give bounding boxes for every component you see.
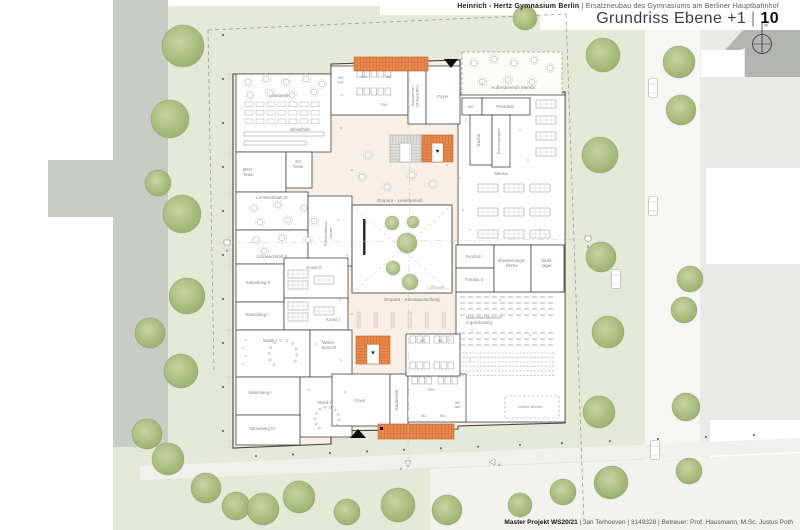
loose-chair-dot (351, 313, 353, 315)
loose-chair-dot (245, 355, 247, 357)
round-table (505, 77, 511, 83)
round-table (283, 79, 289, 85)
loose-chair-dot (469, 359, 471, 361)
bollard-dot (222, 34, 224, 36)
room-label-musik-ii: Musik II (317, 400, 332, 405)
round-table (531, 57, 537, 63)
tree (334, 499, 360, 525)
courtyard-tree (397, 233, 417, 253)
room-label-mensa: Mensa (494, 171, 508, 176)
room-label-essensausgabe: Essensausgabe (497, 128, 501, 154)
ne-lot-c (701, 50, 744, 77)
tree (163, 195, 201, 233)
loose-chair-dot (245, 339, 247, 341)
wc-stall (357, 88, 363, 95)
room-label-küche: Küche (476, 133, 481, 146)
wc-stall (371, 88, 377, 95)
wc-stall (445, 377, 451, 384)
tree (663, 46, 695, 78)
round-table (311, 89, 317, 95)
bollard-dot (222, 122, 224, 124)
courtyard-tree (407, 216, 419, 228)
exhibition-pillar (442, 312, 446, 328)
room-essensausgabe (492, 115, 510, 167)
footer-project: Master Projekt WS20/21 (504, 519, 577, 526)
tree (381, 488, 415, 522)
tree (145, 170, 171, 196)
library-desk (245, 102, 253, 107)
tree (677, 266, 703, 292)
round-table (289, 92, 295, 98)
room-label-hausmeister: Hausmeistermit Backoffice (411, 85, 419, 107)
wc-stall (419, 377, 425, 384)
loose-chair-dot (519, 129, 521, 131)
library-desk (267, 111, 275, 116)
round-table (279, 235, 285, 241)
loose-chair-dot (462, 209, 464, 211)
tree (151, 100, 189, 138)
round-table (409, 172, 415, 178)
round-table (359, 174, 365, 180)
tree (596, 466, 628, 498)
tree (152, 443, 184, 475)
ramp-start-mark (380, 427, 383, 430)
room-label-foyer: Foyer (437, 94, 449, 99)
library-desk (256, 102, 264, 107)
courtyard-tree (386, 261, 400, 275)
entrance-ramp (354, 57, 428, 71)
round-table (275, 202, 281, 208)
tree (583, 396, 615, 428)
room-label-musik-i: Musik I (263, 338, 277, 343)
loose-chair-dot (465, 119, 467, 121)
wc-stall (448, 362, 454, 369)
tree (191, 473, 221, 503)
room-sv-team (286, 152, 312, 188)
path-bollard-dot (329, 452, 331, 454)
area-label-wc: WC (420, 339, 426, 343)
round-table (257, 219, 263, 225)
room-label-wartebereich: Warte-bereich (322, 340, 337, 350)
room-label-sammlung-i: Sammlung I (248, 390, 271, 395)
room-garderobe (390, 374, 408, 426)
book-shelf (244, 141, 306, 145)
library-desk (278, 102, 286, 107)
room-label-stuhllager: Stuhl-lager (541, 258, 553, 268)
floor-plan-sheet: MensaMehrzweckbereich2-geschossigLeseber… (0, 0, 800, 530)
loose-chair-dot (499, 94, 501, 96)
sheet-footer: Master Projekt WS20/21 | Jan Terhoeven |… (504, 519, 793, 526)
round-table (430, 181, 436, 187)
library-desk (300, 119, 308, 124)
tree (135, 318, 165, 348)
exhibition-pillar (357, 312, 361, 328)
path-bollard-dot (753, 434, 755, 436)
bollard-dot (222, 386, 224, 388)
sheet-title-text: Grundriss Ebene +1 (596, 10, 746, 27)
tree (169, 278, 205, 314)
room-label-fundus-i: Fundus I (465, 254, 482, 259)
wc-stall (452, 377, 458, 384)
project-title: Heinrich - Hertz Gymnasium Berlin (457, 3, 579, 10)
east-lot-a (706, 168, 800, 264)
path-bollard-dot (366, 450, 368, 452)
room-label-kunst-ii: Kunst II (307, 265, 322, 270)
wc-stall (410, 336, 416, 343)
round-table (303, 76, 309, 82)
footer-credits: | Jan Terhoeven | 3149328 | Betreuer: Pr… (578, 519, 793, 526)
tree (432, 495, 462, 525)
wc-stall (410, 362, 416, 369)
room-wartebereich (310, 330, 352, 377)
loose-chair-dot (308, 389, 310, 391)
loose-chair-dot (242, 347, 244, 349)
library-desk (311, 111, 319, 116)
room-stuhllager (531, 245, 564, 292)
area-label-wc: WC (361, 75, 367, 79)
wc-stall (426, 377, 432, 384)
loose-chair-dot (344, 391, 346, 393)
round-table (267, 90, 273, 96)
library-desk (289, 102, 297, 107)
loose-chair-dot (471, 329, 473, 331)
library-desk (311, 119, 319, 124)
wc-stall (448, 336, 454, 343)
library-desk (289, 119, 297, 124)
tree (247, 493, 279, 525)
courtyard-tree (385, 216, 399, 230)
exhibition-pillar (374, 312, 378, 328)
loose-chair-dot (340, 359, 342, 361)
loose-chair-dot (539, 229, 541, 231)
loose-chair-dot (346, 254, 348, 256)
tree (550, 479, 576, 505)
bollard-dot (222, 342, 224, 344)
site-green-sw (113, 445, 153, 530)
library-desk (245, 111, 253, 116)
path-bollard-dot (440, 447, 442, 449)
tree (582, 137, 618, 173)
path-bollard-dot (255, 455, 257, 457)
library-desk (267, 119, 275, 124)
sheet-number: 10 (760, 10, 779, 27)
library-desk (278, 119, 286, 124)
round-table (253, 237, 259, 243)
bollard-dot (222, 78, 224, 80)
room-label-garderobe: Garderobe (394, 389, 399, 410)
tree (586, 242, 616, 272)
tree (283, 481, 315, 513)
tree (132, 419, 162, 449)
path-bollard-dot (292, 453, 294, 455)
room-label-lernwerkstatt-iii: Lernwerkstatt III (256, 195, 288, 200)
round-table (263, 76, 269, 82)
path-bollard-dot (705, 436, 707, 438)
tree (592, 316, 624, 348)
round-table (365, 152, 371, 158)
room-mehrzweckbereich (456, 292, 565, 422)
west-building-arm (48, 160, 113, 217)
room-label-kunst-i: Kunst I (326, 317, 340, 322)
round-table (471, 60, 477, 66)
library-desk (278, 111, 286, 116)
library-desk (256, 119, 264, 124)
west-road (113, 0, 168, 447)
courtyard-tree (402, 274, 418, 290)
room-label-fundus-ii: Fundus II (465, 277, 483, 282)
site-plan-canvas: MensaMehrzweckbereich2-geschossigLeseber… (0, 0, 800, 530)
round-table (384, 184, 390, 190)
loose-chair-dot (527, 159, 529, 161)
loose-chair-dot (340, 127, 342, 129)
loose-chair-dot (446, 164, 448, 166)
area-label-wc: WCbeh. (338, 76, 345, 84)
book-shelf (244, 132, 324, 136)
area-label-wc: WCbeh. (455, 401, 462, 409)
tree (671, 297, 697, 323)
library-desk (245, 119, 253, 124)
tree (586, 38, 620, 72)
library-desk (289, 111, 297, 116)
round-table (311, 218, 317, 224)
tree (222, 492, 250, 520)
loose-chair-dot (351, 169, 353, 171)
area-label-trh: TRH (380, 103, 388, 107)
tree (162, 25, 204, 67)
loose-chair-dot (459, 177, 461, 179)
path-bollard-dot (609, 440, 611, 442)
room-label-foyer: Foyer (354, 398, 366, 403)
tree (164, 354, 198, 388)
loose-chair-dot (499, 299, 501, 301)
round-table (245, 79, 251, 85)
round-table (547, 65, 553, 71)
room-label-sammlung-iii: Sammlung III (249, 426, 275, 431)
room-küche (470, 115, 492, 165)
wc-stall (434, 362, 440, 369)
path-bollard-dot (403, 449, 405, 451)
wc-stall (364, 88, 370, 95)
round-table (247, 92, 253, 98)
round-table (319, 81, 325, 87)
wc-stall (378, 88, 384, 95)
bollard-dot (222, 254, 224, 256)
round-table (285, 217, 291, 223)
loose-chair-dot (341, 94, 343, 96)
sheet-title-separator: | (746, 10, 760, 27)
car (612, 270, 621, 289)
path-bollard-dot (561, 442, 563, 444)
room-erweiterungsflaeche (494, 245, 531, 292)
tree (672, 393, 700, 421)
bollard-dot (222, 298, 224, 300)
tree (508, 493, 532, 517)
tree (676, 458, 702, 484)
round-table (511, 60, 517, 66)
wc-stall (441, 362, 447, 369)
sheet-header-project: Heinrich - Hertz Gymnasium Berlin | Ersa… (457, 3, 779, 10)
library-desk (267, 102, 275, 107)
area-label-luftraum: Luftraum (427, 285, 445, 290)
room-label-sammlung-i: Sammlung I (245, 312, 268, 317)
courtyard-bench (363, 219, 366, 255)
library-desk (311, 102, 319, 107)
wc-stall (424, 362, 430, 369)
loose-chair-dot (339, 299, 341, 301)
loose-chair-dot (481, 83, 483, 85)
library-desk (300, 111, 308, 116)
round-table (491, 56, 497, 62)
loose-chair-dot (469, 229, 471, 231)
loose-chair-dot (242, 363, 244, 365)
sheet-title: Grundriss Ebene +1 | 10 (596, 10, 779, 28)
bollard-dot (222, 166, 224, 168)
library-desk (300, 102, 308, 107)
area-label-wc: WC (421, 414, 427, 418)
loose-chair-dot (321, 340, 323, 342)
area-label-wc: WC (438, 339, 444, 343)
path-bollard-dot (519, 444, 521, 446)
car (649, 197, 658, 216)
area-label-außenbereich-mensa: Außenbereich Mensa (491, 85, 535, 90)
wc-stall (385, 88, 391, 95)
path-bollard-dot (477, 446, 479, 448)
tree (666, 95, 696, 125)
area-label-mobile-bühne: mobile Bühne (518, 405, 542, 409)
area-label-wc: WC (440, 414, 446, 418)
area-label-empore-kunstausstellung: Empore - Kunstausstellung (384, 297, 440, 302)
loose-chair-dot (529, 334, 531, 336)
bollard-dot (222, 210, 224, 212)
exhibition-pillar (391, 312, 395, 328)
car (651, 441, 660, 460)
loose-chair-dot (315, 343, 317, 345)
wc-stall (412, 377, 418, 384)
room-label-sammlung-ii: Sammlung II (246, 280, 271, 285)
bollard-dot (222, 430, 224, 432)
room-label-personal: Personal (496, 104, 513, 109)
round-table (261, 248, 267, 254)
room-sammlung-i (236, 377, 300, 415)
area-label-wc: WC (386, 75, 392, 79)
area-label-trh: TRH (427, 388, 435, 392)
library-desk (256, 111, 264, 116)
exhibition-pillar (425, 312, 429, 328)
wc-stall (438, 377, 444, 384)
loose-chair-dot (449, 339, 451, 341)
car (649, 79, 658, 98)
round-table (251, 205, 257, 211)
loose-chair-dot (337, 219, 339, 221)
room-label-wc: WC (468, 105, 475, 109)
area-label-bibliothek: Bibliothek (290, 127, 310, 132)
project-subtitle: | Ersatzneubau des Gymnasiums am Berline… (579, 3, 779, 10)
area-label-empore-lesebereich: Empore - Lesebereich (377, 198, 423, 203)
path-bollard-dot (657, 438, 659, 440)
round-table (301, 205, 307, 211)
wc-stall (417, 362, 423, 369)
